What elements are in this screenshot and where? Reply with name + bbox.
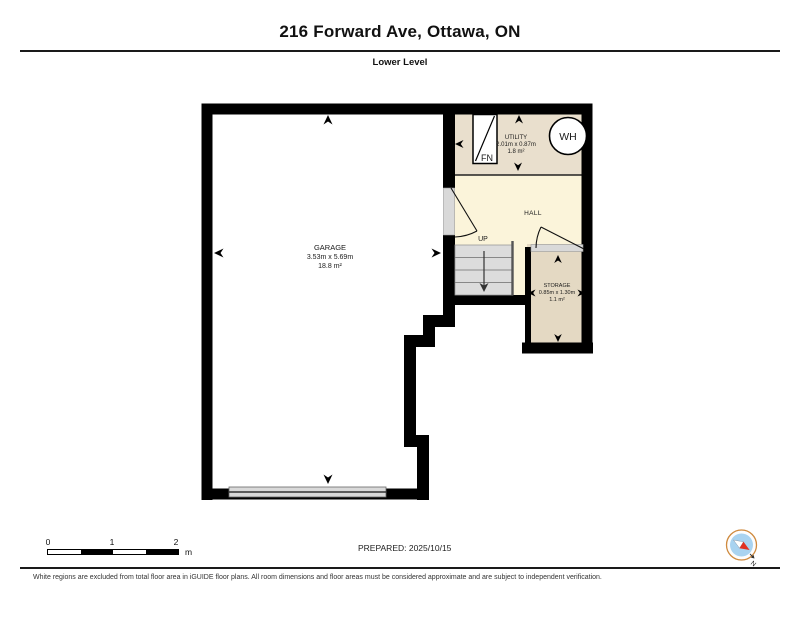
storage-area: 1.1 m² (549, 297, 565, 303)
door-opening-garage-hall (444, 188, 455, 235)
garage-area: 18.8 m² (318, 263, 342, 270)
floor-plan-page: 216 Forward Ave, Ottawa, ON Lower Level (0, 0, 800, 618)
hall-label: HALL (524, 210, 542, 217)
garage-dims: 3.53m x 5.69m (307, 254, 353, 261)
utility-dims: 2.01m x 0.87m (496, 142, 536, 148)
disclaimer-text: White regions are excluded from total fl… (33, 574, 773, 581)
floor-plan-drawing: GARAGE 3.53m x 5.69m 18.8 m² UTILITY 2.0… (0, 80, 800, 530)
scale-segment (146, 550, 179, 554)
stairs (455, 241, 513, 295)
scale-unit-label: m (185, 547, 192, 557)
garage-door (229, 487, 386, 497)
utility-label: UTILITY (505, 135, 527, 141)
scale-bar: 0 1 2 m (46, 537, 246, 559)
compass-icon: N (723, 527, 761, 569)
water-heater-label: WH (559, 131, 577, 143)
footer-divider (20, 567, 780, 569)
prepared-date: PREPARED: 2025/10/15 (358, 543, 451, 553)
level-subtitle: Lower Level (0, 57, 800, 68)
header-divider (20, 50, 780, 52)
scale-segment (48, 550, 81, 554)
page-title: 216 Forward Ave, Ottawa, ON (0, 22, 800, 42)
scale-tick-2: 2 (174, 537, 179, 547)
utility-area: 1.8 m² (507, 149, 524, 155)
scale-tick-1: 1 (110, 537, 115, 547)
scale-bar-segments (47, 549, 179, 555)
up-label: UP (478, 236, 488, 243)
storage-label: STORAGE (544, 283, 571, 289)
scale-tick-0: 0 (46, 537, 51, 547)
garage-label: GARAGE (314, 243, 346, 252)
furnace-label: FN (481, 153, 493, 163)
scale-segment (113, 550, 146, 554)
scale-segment (81, 550, 114, 554)
storage-dims: 0.85m x 1.30m (539, 290, 576, 296)
door-opening-hall-storage (531, 245, 583, 252)
